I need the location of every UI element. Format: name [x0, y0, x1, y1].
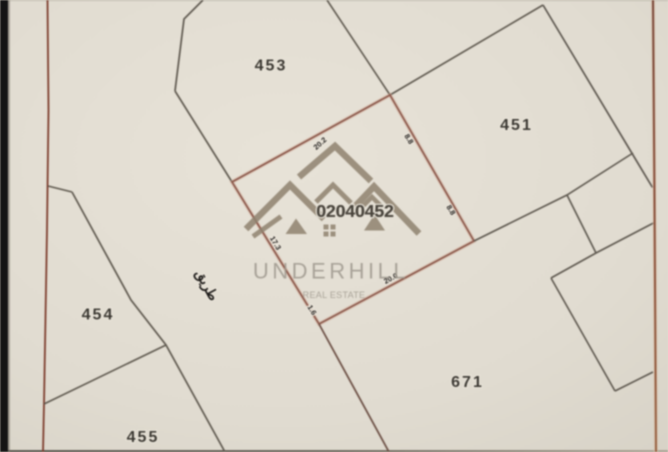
- svg-text:671: 671: [451, 374, 484, 391]
- svg-text:455: 455: [127, 429, 160, 446]
- svg-text:453: 453: [255, 58, 288, 75]
- svg-text:UNDERHILL: UNDERHILL: [253, 259, 409, 284]
- svg-text:451: 451: [500, 117, 533, 134]
- svg-text:02040452: 02040452: [316, 201, 394, 221]
- svg-text:REAL ESTATE: REAL ESTATE: [303, 290, 366, 300]
- svg-text:454: 454: [82, 307, 115, 324]
